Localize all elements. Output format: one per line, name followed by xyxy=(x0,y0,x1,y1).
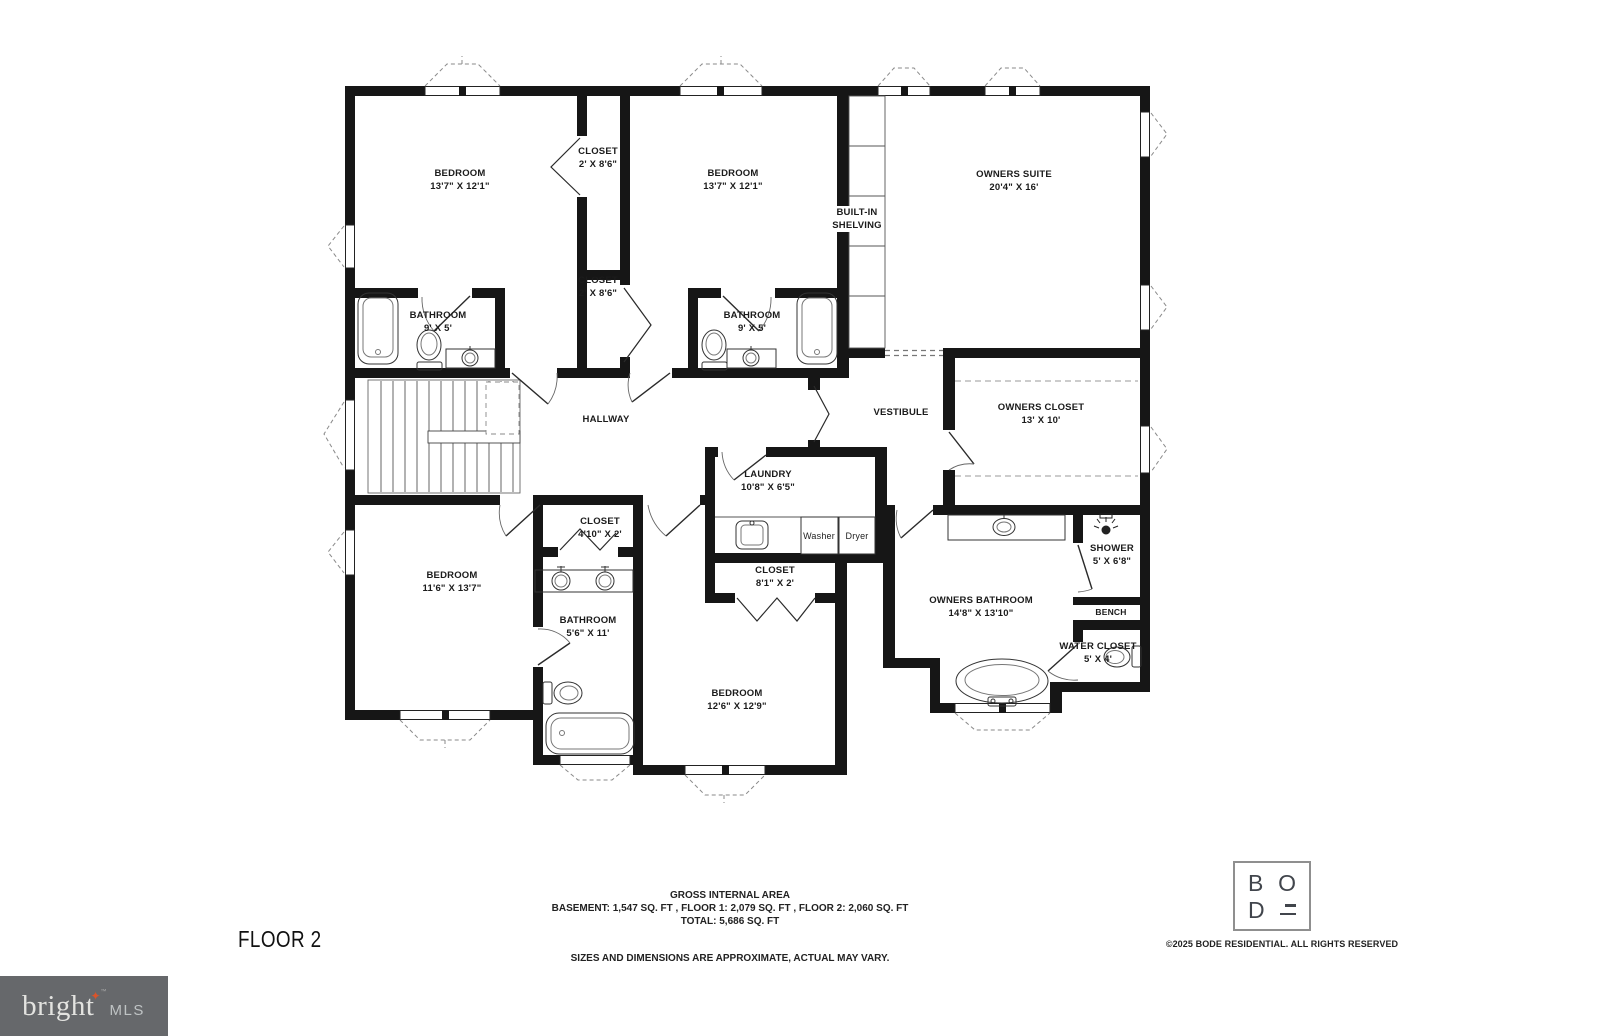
bode-letter-d: D xyxy=(1248,898,1265,922)
staircase xyxy=(368,380,520,493)
washer-label: Washer xyxy=(803,531,835,541)
room-label-bench: BENCH xyxy=(1095,606,1126,619)
dashed-openings xyxy=(885,351,943,356)
copyright-text: ©2025 BODE RESIDENTIAL. ALL RIGHTS RESER… xyxy=(1132,939,1432,949)
bathtub-top-mid xyxy=(797,293,837,364)
bright-wordmark: bright xyxy=(22,990,94,1023)
bathtub-top-left xyxy=(358,293,398,364)
room-label-bathroom-top-left: BATHROOM9' X 5' xyxy=(410,309,467,335)
dryer-label: Dryer xyxy=(846,531,869,541)
bode-letter-e-glyph xyxy=(1280,904,1296,915)
bright-mls-text: MLS xyxy=(110,1002,145,1019)
dimensions-disclaimer: SIZES AND DIMENSIONS ARE APPROXIMATE, AC… xyxy=(530,953,930,964)
closet-rod-dashes xyxy=(955,381,1138,476)
room-label-shower: SHOWER5' X 6'8" xyxy=(1090,542,1134,568)
room-label-bedroom-bottom-left: BEDROOM11'6" X 13'7" xyxy=(423,569,482,595)
owners-bath-vanity xyxy=(948,515,1065,540)
room-label-closet-mid: CLOSET2' X 8'6" xyxy=(578,274,618,300)
floor-plan-page: BEDROOM13'7" X 12'1" CLOSET2' X 8'6" BED… xyxy=(0,0,1600,1036)
toilet-top-mid xyxy=(702,330,727,370)
shower-head-icon xyxy=(1094,514,1118,534)
sink-top-mid xyxy=(727,346,776,368)
room-label-water-closet: WATER CLOSET5' X 4' xyxy=(1059,640,1136,666)
room-label-bedroom-top-left: BEDROOM13'7" X 12'1" xyxy=(430,167,489,193)
room-label-vestibule: VESTIBULE xyxy=(873,406,928,419)
room-label-hallway: HALLWAY xyxy=(583,413,630,426)
gross-area-title: GROSS INTERNAL AREA xyxy=(530,889,930,902)
room-label-owners-suite: OWNERS SUITE20'4" X 16' xyxy=(976,168,1052,194)
bright-spark-icon: ✦ xyxy=(90,989,100,1003)
bright-trademark: ™ xyxy=(101,989,107,995)
gross-internal-area-block: GROSS INTERNAL AREA BASEMENT: 1,547 SQ. … xyxy=(530,889,930,928)
room-label-closet-small: CLOSET4'10" X 2' xyxy=(578,515,622,541)
bode-letter-b: B xyxy=(1248,871,1263,895)
oval-soaking-tub xyxy=(956,659,1048,706)
gross-area-total: TOTAL: 5,686 SQ. FT xyxy=(530,915,930,928)
toilet-top-left xyxy=(417,330,442,370)
bode-letter-o: O xyxy=(1278,871,1296,895)
room-label-closet-top: CLOSET2' X 8'6" xyxy=(578,145,618,171)
bathtub-bottom-mid xyxy=(546,713,634,754)
room-label-owners-bathroom: OWNERS BATHROOM14'8" X 13'10" xyxy=(929,594,1033,620)
room-label-bedroom-top-mid: BEDROOM13'7" X 12'1" xyxy=(703,167,762,193)
floor-title: FLOOR 2 xyxy=(238,926,322,953)
sink-top-left xyxy=(446,346,495,368)
double-vanity-mid xyxy=(535,566,633,592)
room-label-closet-wide: CLOSET8'1" X 2' xyxy=(755,564,795,590)
room-label-bathroom-top-mid: BATHROOM9' X 5' xyxy=(724,309,781,335)
room-label-built-in-shelving: BUILT-INSHELVING xyxy=(830,206,883,232)
room-label-owners-closet: OWNERS CLOSET13' X 10' xyxy=(998,401,1085,427)
floor-plan-drawing xyxy=(0,0,1600,1036)
toilet-bottom-mid xyxy=(543,682,582,704)
room-label-laundry: LAUNDRY10'8" X 6'5" xyxy=(741,468,795,494)
bode-logo: B O D xyxy=(1233,861,1311,931)
room-label-bedroom-bottom-mid: BEDROOM12'6" X 12'9" xyxy=(707,687,766,713)
bifold-doors xyxy=(551,138,829,621)
gross-area-breakdown: BASEMENT: 1,547 SQ. FT , FLOOR 1: 2,079 … xyxy=(530,902,930,915)
bright-mls-logo: bright ✦ ™ MLS xyxy=(0,976,168,1036)
room-label-bathroom-bottom-mid: BATHROOM5'6" X 11' xyxy=(560,614,617,640)
